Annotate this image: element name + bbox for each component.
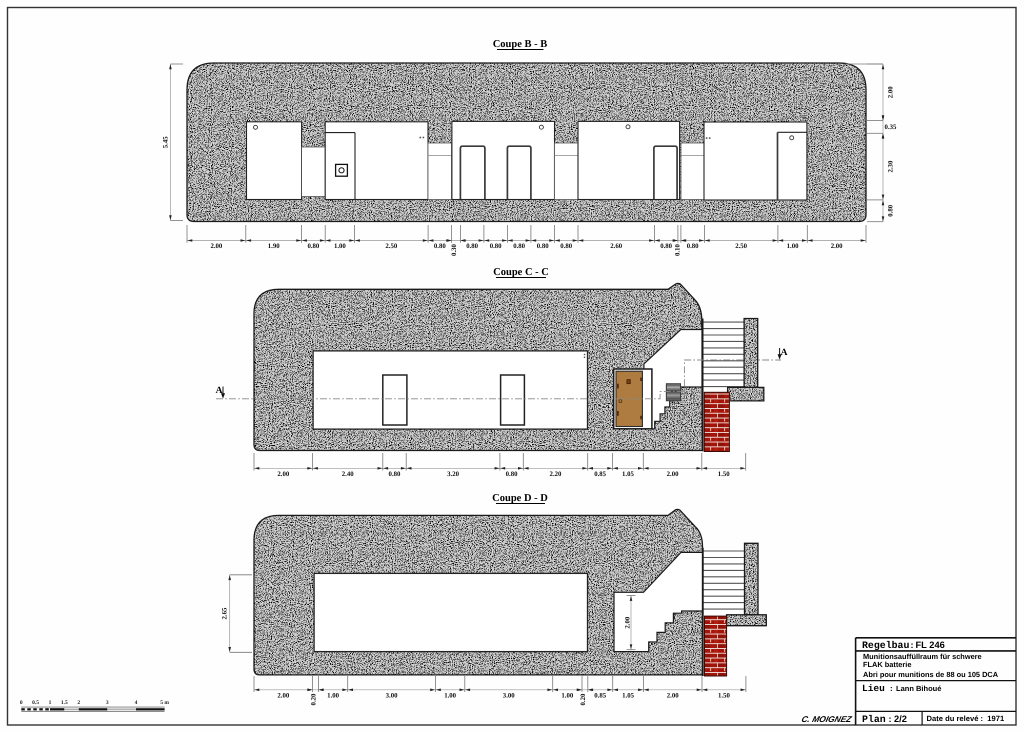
svg-text:0.80: 0.80 xyxy=(466,243,478,250)
svg-text:Lann Bihoué: Lann Bihoué xyxy=(896,684,941,693)
svg-text:2.00: 2.00 xyxy=(277,693,289,700)
svg-text:1.00: 1.00 xyxy=(787,243,799,250)
svg-text:5 m: 5 m xyxy=(160,700,169,706)
svg-text:0.80: 0.80 xyxy=(513,243,525,250)
svg-text:1.00: 1.00 xyxy=(444,693,456,700)
svg-text:C. MOIGNEZ: C. MOIGNEZ xyxy=(801,714,854,724)
svg-text:1.00: 1.00 xyxy=(334,243,346,250)
svg-text:3.00: 3.00 xyxy=(503,693,515,700)
svg-text:1.5: 1.5 xyxy=(61,700,68,706)
svg-text:2.00: 2.00 xyxy=(277,471,289,478)
svg-text:Date du relevé : 1971: Date du relevé : 1971 xyxy=(927,714,1005,723)
svg-text:0: 0 xyxy=(20,700,23,706)
svg-text:A: A xyxy=(781,348,788,358)
svg-text:1.00: 1.00 xyxy=(327,693,339,700)
svg-text:1.00: 1.00 xyxy=(561,693,573,700)
svg-text:1: 1 xyxy=(49,700,52,706)
svg-text:0.20: 0.20 xyxy=(311,693,318,705)
svg-text:0.80: 0.80 xyxy=(307,243,319,250)
svg-text:1.05: 1.05 xyxy=(622,693,634,700)
svg-text:1.05: 1.05 xyxy=(622,471,634,478)
svg-text:Lieu: Lieu xyxy=(862,683,885,694)
svg-text:0.80: 0.80 xyxy=(687,243,699,250)
svg-text:Coupe B - B: Coupe B - B xyxy=(493,39,548,50)
svg-text:2.00: 2.00 xyxy=(831,243,843,250)
svg-text:Plan: Plan xyxy=(862,714,886,725)
svg-text:2: 2 xyxy=(77,700,80,706)
svg-text:2.00: 2.00 xyxy=(625,616,632,628)
svg-text:1.50: 1.50 xyxy=(718,471,730,478)
svg-text:0.80: 0.80 xyxy=(490,243,502,250)
svg-text::: : xyxy=(890,684,893,693)
svg-text:2.00: 2.00 xyxy=(667,471,679,478)
svg-text:0.85: 0.85 xyxy=(594,471,606,478)
svg-text:0.80: 0.80 xyxy=(560,243,572,250)
svg-text:2.50: 2.50 xyxy=(385,243,397,250)
svg-text:0.20: 0.20 xyxy=(580,693,587,705)
svg-text:0.80: 0.80 xyxy=(506,471,518,478)
svg-text:2/2: 2/2 xyxy=(894,714,907,724)
svg-text:3.00: 3.00 xyxy=(386,693,398,700)
svg-text::: : xyxy=(911,640,914,650)
svg-text:0.5: 0.5 xyxy=(32,700,39,706)
svg-text:4: 4 xyxy=(135,700,138,706)
svg-text:2.30: 2.30 xyxy=(888,160,895,172)
svg-text:2.50: 2.50 xyxy=(735,243,747,250)
svg-text:2.20: 2.20 xyxy=(550,471,562,478)
svg-text:2.65: 2.65 xyxy=(222,607,229,619)
svg-text:0.80: 0.80 xyxy=(389,471,401,478)
svg-text:2.60: 2.60 xyxy=(610,243,622,250)
svg-text:3.20: 3.20 xyxy=(447,471,459,478)
svg-text:Regelbau: Regelbau xyxy=(862,640,909,651)
svg-text:Abri pour munitions de 88 ou 1: Abri pour munitions de 88 ou 105 DCA xyxy=(863,670,999,679)
svg-text:FL 246: FL 246 xyxy=(916,640,945,650)
svg-text:0.80: 0.80 xyxy=(537,243,549,250)
svg-text:0.80: 0.80 xyxy=(434,243,446,250)
svg-text:2.00: 2.00 xyxy=(210,243,222,250)
svg-text:3: 3 xyxy=(106,700,109,706)
svg-text:0.30: 0.30 xyxy=(451,243,458,255)
svg-text:0.10: 0.10 xyxy=(674,243,681,255)
svg-text:0.80: 0.80 xyxy=(888,204,895,216)
svg-text:2.00: 2.00 xyxy=(667,693,679,700)
svg-text:0.85: 0.85 xyxy=(594,693,606,700)
svg-text:1.90: 1.90 xyxy=(268,243,280,250)
svg-text:2.40: 2.40 xyxy=(342,471,354,478)
svg-text:0.35: 0.35 xyxy=(885,124,897,131)
svg-text:2.00: 2.00 xyxy=(888,86,895,98)
svg-text:Coupe C - C: Coupe C - C xyxy=(493,267,549,278)
svg-text:Coupe D - D: Coupe D - D xyxy=(492,493,548,504)
svg-text:FLAK batterie: FLAK batterie xyxy=(863,660,911,669)
svg-text:1.50: 1.50 xyxy=(718,693,730,700)
svg-text:5.45: 5.45 xyxy=(163,136,170,148)
svg-text::: : xyxy=(889,714,892,724)
svg-text:0.80: 0.80 xyxy=(660,243,672,250)
